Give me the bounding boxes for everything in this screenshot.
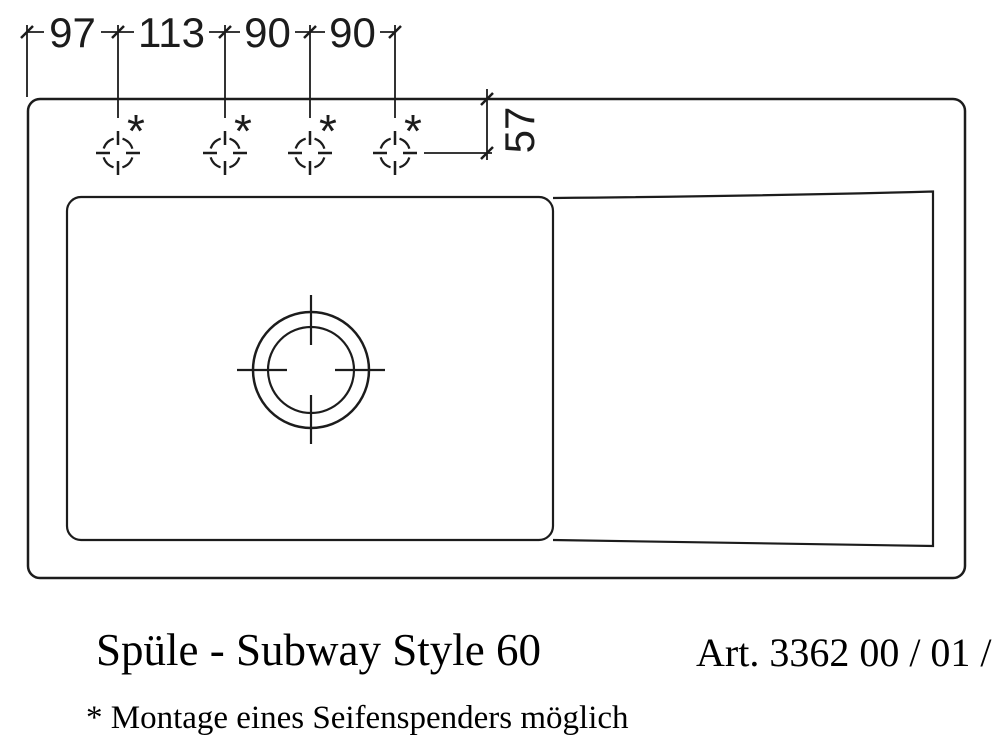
sink-technical-drawing-page: 97 113 90 90 57 * * xyxy=(0,0,992,745)
mounting-hole-4: * xyxy=(373,105,422,175)
hole-asterisk: * xyxy=(319,105,337,157)
mounting-hole-2: * xyxy=(203,105,252,175)
dimension-value-113: 113 xyxy=(138,9,205,56)
article-number: Art. 3362 00 / 01 / 02 xyxy=(696,629,992,676)
dimension-value-90a: 90 xyxy=(244,9,291,56)
mounting-hole-3: * xyxy=(288,105,337,175)
dimension-value-97: 97 xyxy=(49,9,96,56)
product-title: Spüle - Subway Style 60 xyxy=(96,624,541,676)
sink-outline xyxy=(28,99,965,578)
drainboard-outline xyxy=(553,192,933,547)
mounting-hole-1: * xyxy=(96,105,145,175)
drain-symbol xyxy=(237,295,385,444)
top-dimension-chain: 97 113 90 90 xyxy=(21,9,401,118)
dimension-value-57: 57 xyxy=(496,107,543,154)
footnote: * Montage eines Seifenspenders möglich xyxy=(86,700,629,737)
hole-asterisk: * xyxy=(404,105,422,157)
hole-asterisk: * xyxy=(127,105,145,157)
hole-asterisk: * xyxy=(234,105,252,157)
basin-outline xyxy=(67,197,553,540)
dimension-value-90b: 90 xyxy=(329,9,376,56)
